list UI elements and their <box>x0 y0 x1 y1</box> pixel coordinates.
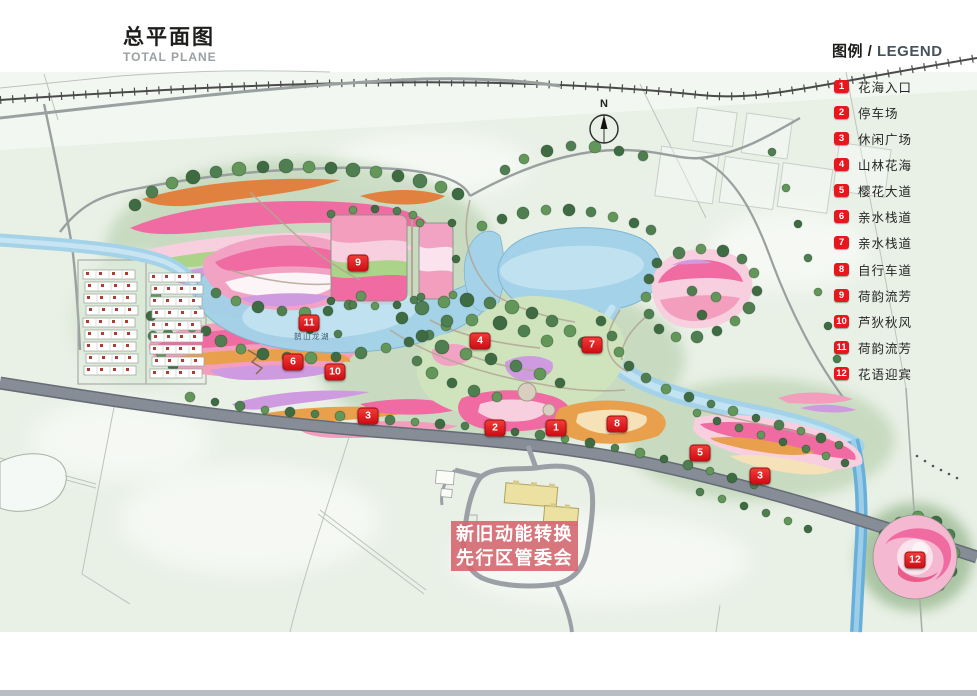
legend-badge: 9 <box>834 289 849 302</box>
map-marker-1: 1 <box>546 420 567 437</box>
legend-item: 8自行车道 <box>834 261 912 278</box>
legend-badge: 8 <box>834 263 849 276</box>
map-marker-3a: 3 <box>358 408 379 425</box>
legend-badge: 3 <box>834 132 849 145</box>
master-plan-page: { "title": { "cn": "总平面图", "en": "TOTAL … <box>0 0 977 696</box>
legend-header-en: LEGEND <box>877 43 943 60</box>
legend-label: 亲水栈道 <box>858 207 912 226</box>
legend-label: 自行车道 <box>858 260 912 279</box>
page-title: 总平面图 TOTAL PLANE <box>123 26 217 64</box>
map-marker-7: 7 <box>582 337 603 354</box>
legend-item: 1花海入口 <box>834 78 912 95</box>
legend-header-cn: 图例 / <box>832 43 872 60</box>
legend-item: 12花语迎宾 <box>834 365 912 382</box>
map-marker-9: 9 <box>348 255 369 272</box>
legend-badge: 2 <box>834 106 849 119</box>
legend-badge: 6 <box>834 210 849 223</box>
lake-label: 鹊山龙湖 <box>294 331 330 342</box>
title-english: TOTAL PLANE <box>123 50 217 64</box>
map-marker-3b: 3 <box>750 468 771 485</box>
map-marker-5: 5 <box>690 445 711 462</box>
map-marker-2: 2 <box>485 420 506 437</box>
legend-badge: 10 <box>834 315 849 328</box>
legend-label: 荷韵流芳 <box>858 286 912 305</box>
title-chinese: 总平面图 <box>123 26 217 50</box>
map-marker-10: 10 <box>325 364 346 381</box>
legend-label: 芦狄秋风 <box>858 312 912 331</box>
legend-label: 山林花海 <box>858 155 912 174</box>
map-marker-11: 11 <box>299 315 320 332</box>
map-marker-4: 4 <box>470 333 491 350</box>
legend-label: 荷韵流芳 <box>858 338 912 357</box>
legend-item: 10芦狄秋风 <box>834 313 912 330</box>
legend-item: 4山林花海 <box>834 156 912 173</box>
legend-item: 5樱花大道 <box>834 182 912 199</box>
legend-item: 7亲水栈道 <box>834 234 912 251</box>
legend-badge: 11 <box>834 341 849 354</box>
legend-badge: 1 <box>834 80 849 93</box>
government-label-line2: 先行区管委会 <box>456 546 573 570</box>
map-marker-12: 12 <box>905 552 926 569</box>
legend-label: 亲水栈道 <box>858 233 912 252</box>
legend-label: 花海入口 <box>858 77 912 96</box>
footer-bar <box>0 690 977 696</box>
legend-label: 停车场 <box>858 103 899 122</box>
legend-badge: 12 <box>834 367 849 380</box>
government-label-line1: 新旧动能转换 <box>456 522 573 546</box>
legend-badge: 7 <box>834 236 849 249</box>
north-label: N <box>600 98 608 110</box>
legend-item: 2停车场 <box>834 104 899 121</box>
map-marker-8: 8 <box>607 416 628 433</box>
legend-label: 樱花大道 <box>858 181 912 200</box>
legend-item: 9荷韵流芳 <box>834 287 912 304</box>
legend-badge: 5 <box>834 184 849 197</box>
legend-label: 休闲广场 <box>858 129 912 148</box>
legend-item: 3休闲广场 <box>834 130 912 147</box>
legend-header: 图例 / LEGEND <box>832 40 943 61</box>
legend-label: 花语迎宾 <box>858 364 912 383</box>
legend-item: 6亲水栈道 <box>834 208 912 225</box>
map-marker-6: 6 <box>283 354 304 371</box>
government-label: 新旧动能转换 先行区管委会 <box>451 521 578 571</box>
legend-badge: 4 <box>834 158 849 171</box>
legend-item: 11荷韵流芳 <box>834 339 912 356</box>
